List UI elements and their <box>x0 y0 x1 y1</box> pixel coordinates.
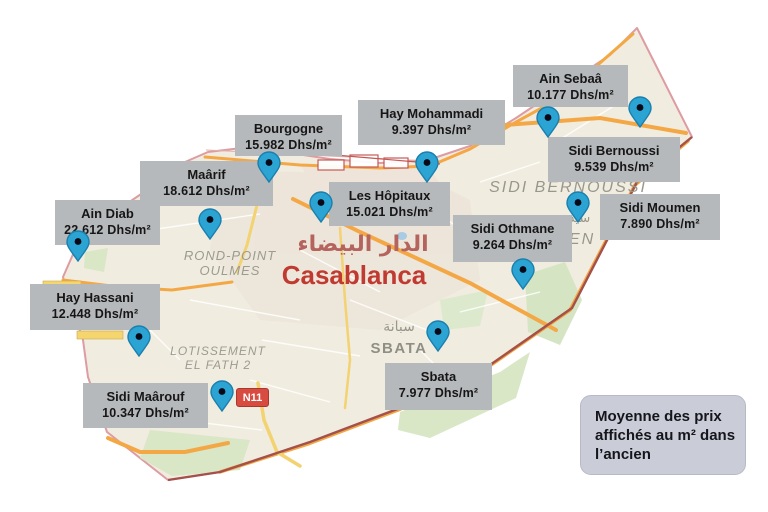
price-value: 12.448 Dhs/m² <box>30 306 160 322</box>
district-name: Sbata <box>385 368 492 385</box>
price-value: 9.264 Dhs/m² <box>453 237 572 253</box>
price-value: 10.177 Dhs/m² <box>513 87 628 103</box>
price-value: 9.397 Dhs/m² <box>358 122 505 138</box>
map-pin-icon[interactable] <box>511 258 535 290</box>
price-label-box: Sidi Othmane 9.264 Dhs/m² <box>453 215 572 262</box>
map-pin-icon[interactable] <box>309 191 333 223</box>
map-pin-icon[interactable] <box>66 230 90 262</box>
map-pin-icon[interactable] <box>415 151 439 183</box>
price-value: 15.021 Dhs/m² <box>329 204 450 220</box>
district-name: Ain Diab <box>55 205 160 222</box>
legend-box: Moyenne des prix affichés au m² dans l’a… <box>580 395 746 475</box>
casablanca-price-map: سيدي مومن SIDI MOUMEN SIDI BERNOUSSI الد… <box>0 0 768 512</box>
price-value: 15.982 Dhs/m² <box>235 137 342 153</box>
price-label-box: Maârif 18.612 Dhs/m² <box>140 161 273 206</box>
price-label-box: Sbata 7.977 Dhs/m² <box>385 363 492 410</box>
district-name: Maârif <box>140 166 273 183</box>
district-name: Sidi Othmane <box>453 220 572 237</box>
district-name: Sidi Bernoussi <box>548 142 680 159</box>
legend-line1: Moyenne des prix <box>595 407 745 426</box>
price-label-box: Les Hôpitaux 15.021 Dhs/m² <box>329 182 450 226</box>
legend-line3: l’ancien <box>595 445 745 464</box>
map-pin-icon[interactable] <box>210 380 234 412</box>
price-value: 10.347 Dhs/m² <box>83 405 208 421</box>
price-label-box: Sidi Maârouf 10.347 Dhs/m² <box>83 383 208 428</box>
district-name: Sidi Maârouf <box>83 388 208 405</box>
map-pin-icon[interactable] <box>628 96 652 128</box>
district-name: Hay Mohammadi <box>358 105 505 122</box>
price-label-box: Sidi Moumen 7.890 Dhs/m² <box>600 194 720 240</box>
map-pin-icon[interactable] <box>198 208 222 240</box>
price-value: 18.612 Dhs/m² <box>140 183 273 199</box>
district-name: Sidi Moumen <box>600 199 720 216</box>
price-label-box: Bourgogne 15.982 Dhs/m² <box>235 115 342 156</box>
price-value: 7.977 Dhs/m² <box>385 385 492 401</box>
map-pin-icon[interactable] <box>566 191 590 223</box>
map-pin-icon[interactable] <box>257 151 281 183</box>
price-label-box: Hay Mohammadi 9.397 Dhs/m² <box>358 100 505 145</box>
district-name: Ain Sebaâ <box>513 70 628 87</box>
district-name: Bourgogne <box>235 120 342 137</box>
map-pin-icon[interactable] <box>127 325 151 357</box>
price-label-box: Ain Sebaâ 10.177 Dhs/m² <box>513 65 628 107</box>
price-value: 7.890 Dhs/m² <box>600 216 720 232</box>
legend-line2: affichés au m² dans <box>595 426 745 445</box>
price-value: 9.539 Dhs/m² <box>548 159 680 175</box>
map-pin-icon[interactable] <box>426 320 450 352</box>
price-label-box: Hay Hassani 12.448 Dhs/m² <box>30 284 160 330</box>
district-name: Hay Hassani <box>30 289 160 306</box>
price-label-box: Sidi Bernoussi 9.539 Dhs/m² <box>548 137 680 182</box>
district-name: Les Hôpitaux <box>329 187 450 204</box>
map-pin-icon[interactable] <box>536 106 560 138</box>
